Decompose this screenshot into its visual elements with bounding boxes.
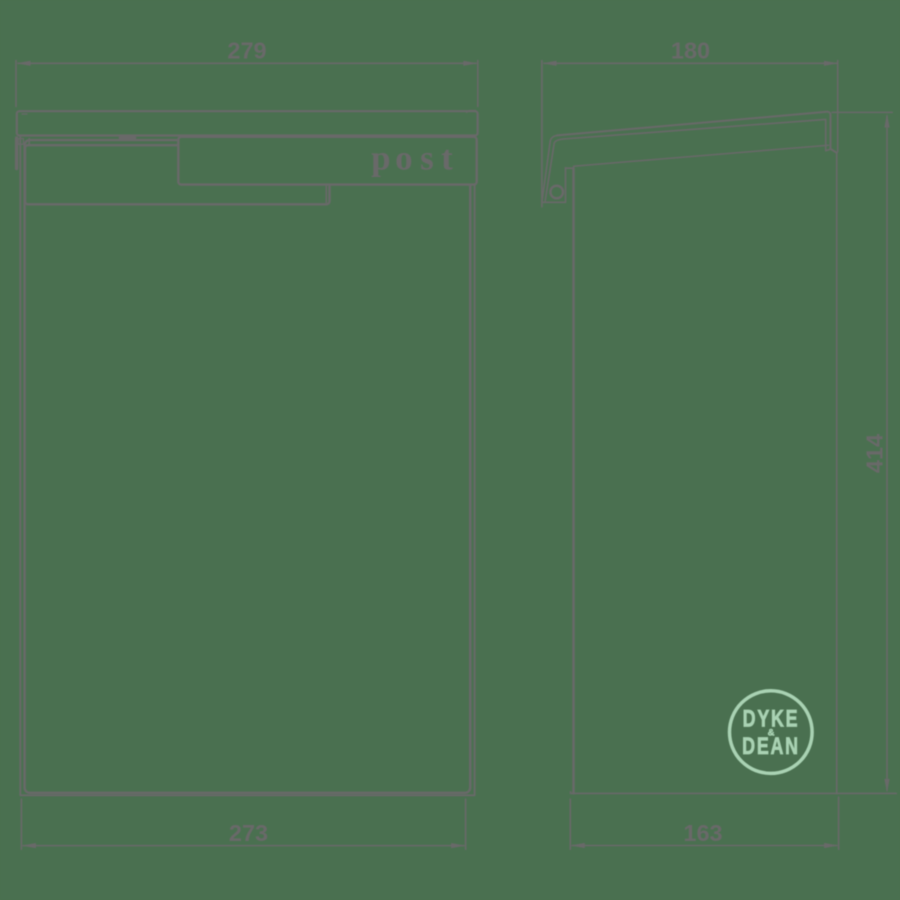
svg-text:s: s [420, 138, 434, 177]
svg-text:o: o [395, 138, 413, 177]
svg-text:414: 414 [862, 434, 888, 473]
svg-text:180: 180 [671, 38, 710, 64]
svg-text:DEAN: DEAN [742, 732, 800, 759]
svg-text:279: 279 [227, 38, 266, 64]
svg-text:t: t [441, 138, 453, 177]
svg-text:p: p [371, 138, 390, 177]
svg-text:163: 163 [683, 820, 722, 846]
svg-text:273: 273 [229, 820, 268, 846]
